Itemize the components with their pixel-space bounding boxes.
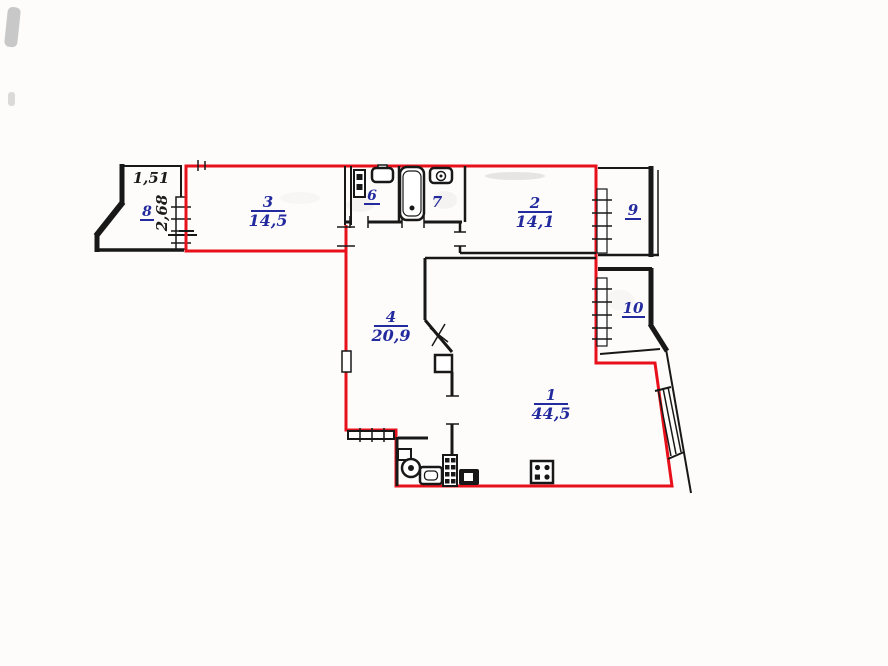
paper-background [0,0,888,666]
stove-icon [531,461,553,483]
room-area: 20,9 [371,326,411,345]
room-area: 14,5 [249,211,288,230]
room-label-10: 10 [622,299,645,317]
room-number: 9 [628,201,639,219]
floor-plan-drawing: 3 14,5 2 14,1 4 20,9 1 44,5 6 7 8 [0,0,888,666]
balcony-width-dimension: 1,51 [133,169,170,187]
room-number: 10 [623,299,644,317]
room-label-7: 7 [432,193,443,211]
room-number: 7 [432,193,443,211]
bathtub-icon [400,167,424,220]
wall-panel [342,351,351,372]
toilet-icon [372,165,393,182]
floor-plan-page: 3 14,5 2 14,1 4 20,9 1 44,5 6 7 8 [0,0,888,666]
heater-icon [354,170,365,197]
room-number: 8 [142,204,152,220]
window-icon [348,428,394,442]
room-number: 2 [529,194,540,212]
cabinet-icon [443,455,457,486]
room-number: 3 [263,193,273,211]
room-area: 44,5 [532,404,571,423]
room-number: 1 [546,386,556,404]
counter-icon [459,469,479,485]
balcony-depth-dimension: 2,68 [153,194,171,232]
washbasin-icon [420,467,442,484]
room-number: 6 [367,188,377,204]
room-number: 4 [386,308,396,326]
sink-icon [430,168,452,183]
vent-shaft-icon [435,355,452,372]
room-area: 14,1 [516,212,555,231]
